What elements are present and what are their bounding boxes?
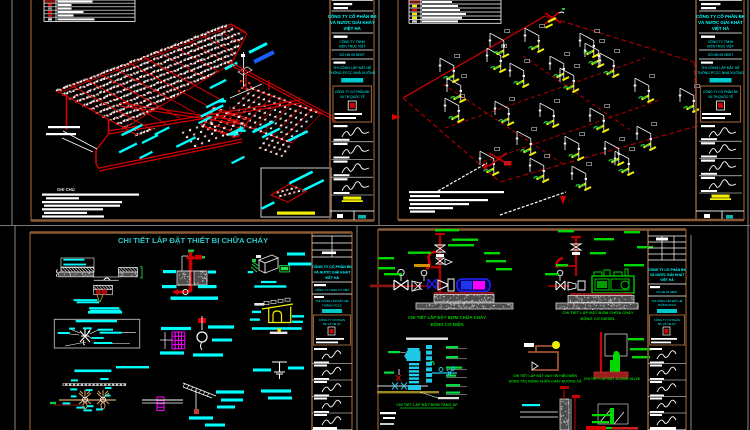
svg-text:DÒNG TÁC ĐỘNG CHỮA CHÁY ĐƯỜNG: DÒNG TÁC ĐỘNG CHỮA CHÁY ĐƯỜNG XẢ <box>509 379 582 384</box>
svg-text:CHI TIẾT LẮP ĐẶT VAN TÍN HIỆU: CHI TIẾT LẮP ĐẶT VAN TÍN HIỆU ĐIỆN <box>513 373 578 378</box>
svg-text:THI CÔNG LẮP ĐẶT HỆ: THI CÔNG LẮP ĐẶT HỆ <box>333 65 372 70</box>
svg-text:CHI TIẾT LẮP ĐẶT BƠM CHỮA CHÁY: CHI TIẾT LẮP ĐẶT BƠM CHỮA CHÁY <box>562 310 634 315</box>
svg-text:CHI TIẾT LẮP ĐẶT ALARM VALVE: CHI TIẾT LẮP ĐẶT ALARM VALVE <box>584 376 641 381</box>
svg-text:VIỆT HÀ: VIỆT HÀ <box>344 26 362 31</box>
svg-text:CÔNG TY TNHH: CÔNG TY TNHH <box>708 39 734 44</box>
svg-text:CÔNG TY CỔ PHẦN BK: CÔNG TY CỔ PHẦN BK <box>696 14 746 19</box>
svg-text:SỐ HĐ 05 HĐKT: SỐ HĐ 05 HĐKT <box>708 52 734 57</box>
svg-text:VÀ TM QUỐC TẾ: VÀ TM QUỐC TẾ <box>340 94 365 99</box>
svg-text:GHI CHÚ: GHI CHÚ <box>57 187 75 192</box>
svg-text:VÀ TM QUỐC TẾ: VÀ TM QUỐC TẾ <box>708 94 733 99</box>
svg-text:KIẾN TRÚC VIỆT: KIẾN TRÚC VIỆT <box>707 44 734 49</box>
svg-text:VÀ NƯỚC GIẢI KHÁT: VÀ NƯỚC GIẢI KHÁT <box>650 272 685 277</box>
svg-text:VIỆT HÀ: VIỆT HÀ <box>325 275 340 280</box>
svg-text:THI CÔNG LẮP ĐẶT HỆ: THI CÔNG LẮP ĐẶT HỆ <box>316 298 349 303</box>
svg-text:VÀ NƯỚC GIẢI KHÁT: VÀ NƯỚC GIẢI KHÁT <box>330 20 375 25</box>
svg-text:THỐNG PCCC: THỐNG PCCC <box>322 303 343 308</box>
svg-text:CHI TIẾT LẮP ĐẶT BƠM TĂNG ÁP: CHI TIẾT LẮP ĐẶT BƠM TĂNG ÁP <box>396 402 458 407</box>
svg-text:THỐNG PCCC NHÀ XƯỞNG: THỐNG PCCC NHÀ XƯỞNG <box>329 70 376 75</box>
svg-text:SỐ HĐ 05 HĐKT: SỐ HĐ 05 HĐKT <box>339 52 365 57</box>
svg-text:KIẾN TRÚC VIỆT: KIẾN TRÚC VIỆT <box>339 44 366 49</box>
svg-text:THI CÔNG LẮP ĐẶT HỆ: THI CÔNG LẮP ĐẶT HỆ <box>701 65 740 70</box>
svg-text:CÔNG TY CỔ PHẦN BK: CÔNG TY CỔ PHẦN BK <box>328 14 378 19</box>
svg-text:ĐỘNG CƠ ĐIỆN: ĐỘNG CƠ ĐIỆN <box>430 322 463 327</box>
svg-text:BK VÀ TM QT: BK VÀ TM QT <box>658 322 676 326</box>
svg-text:SỐ HĐ 05 HĐKT: SỐ HĐ 05 HĐKT <box>656 289 677 294</box>
svg-text:ĐỘNG CƠ DIESEL: ĐỘNG CƠ DIESEL <box>581 316 617 321</box>
svg-text:CÔNG TY TNHH: CÔNG TY TNHH <box>339 39 365 44</box>
svg-text:CHI TIẾT LẮP ĐẶT THIẾT BỊ CHỮA: CHI TIẾT LẮP ĐẶT THIẾT BỊ CHỮA CHÁY <box>118 235 268 245</box>
svg-text:THỐNG PCCC NHÀ XƯỞNG: THỐNG PCCC NHÀ XƯỞNG <box>697 70 744 75</box>
svg-text:CÔNG TY TNHH KT VIỆT: CÔNG TY TNHH KT VIỆT <box>315 287 350 292</box>
svg-text:BK VÀ TM QT: BK VÀ TM QT <box>323 322 341 326</box>
svg-text:CÔNG TY CỔ PHẦN BK: CÔNG TY CỔ PHẦN BK <box>703 89 739 94</box>
svg-text:VIỆT HÀ: VIỆT HÀ <box>712 26 730 31</box>
svg-text:VIỆT HÀ: VIỆT HÀ <box>660 277 674 282</box>
svg-text:CÔNG TY CỔ PHẦN BK: CÔNG TY CỔ PHẦN BK <box>648 267 686 272</box>
svg-text:CÔNG TY CỔ PHẦN BK: CÔNG TY CỔ PHẦN BK <box>312 264 352 269</box>
svg-text:THỐNG PCCC: THỐNG PCCC <box>658 302 677 307</box>
svg-text:CÔNG TY CỔ PHẦN BK: CÔNG TY CỔ PHẦN BK <box>335 89 371 94</box>
svg-text:VÀ NƯỚC GIẢI KHÁT: VÀ NƯỚC GIẢI KHÁT <box>698 20 743 25</box>
svg-text:VÀ NƯỚC GIẢI KHÁT: VÀ NƯỚC GIẢI KHÁT <box>314 270 351 275</box>
svg-text:CHI TIẾT LẮP ĐẶT BƠM CHỮA CHÁY: CHI TIẾT LẮP ĐẶT BƠM CHỮA CHÁY <box>408 315 486 320</box>
